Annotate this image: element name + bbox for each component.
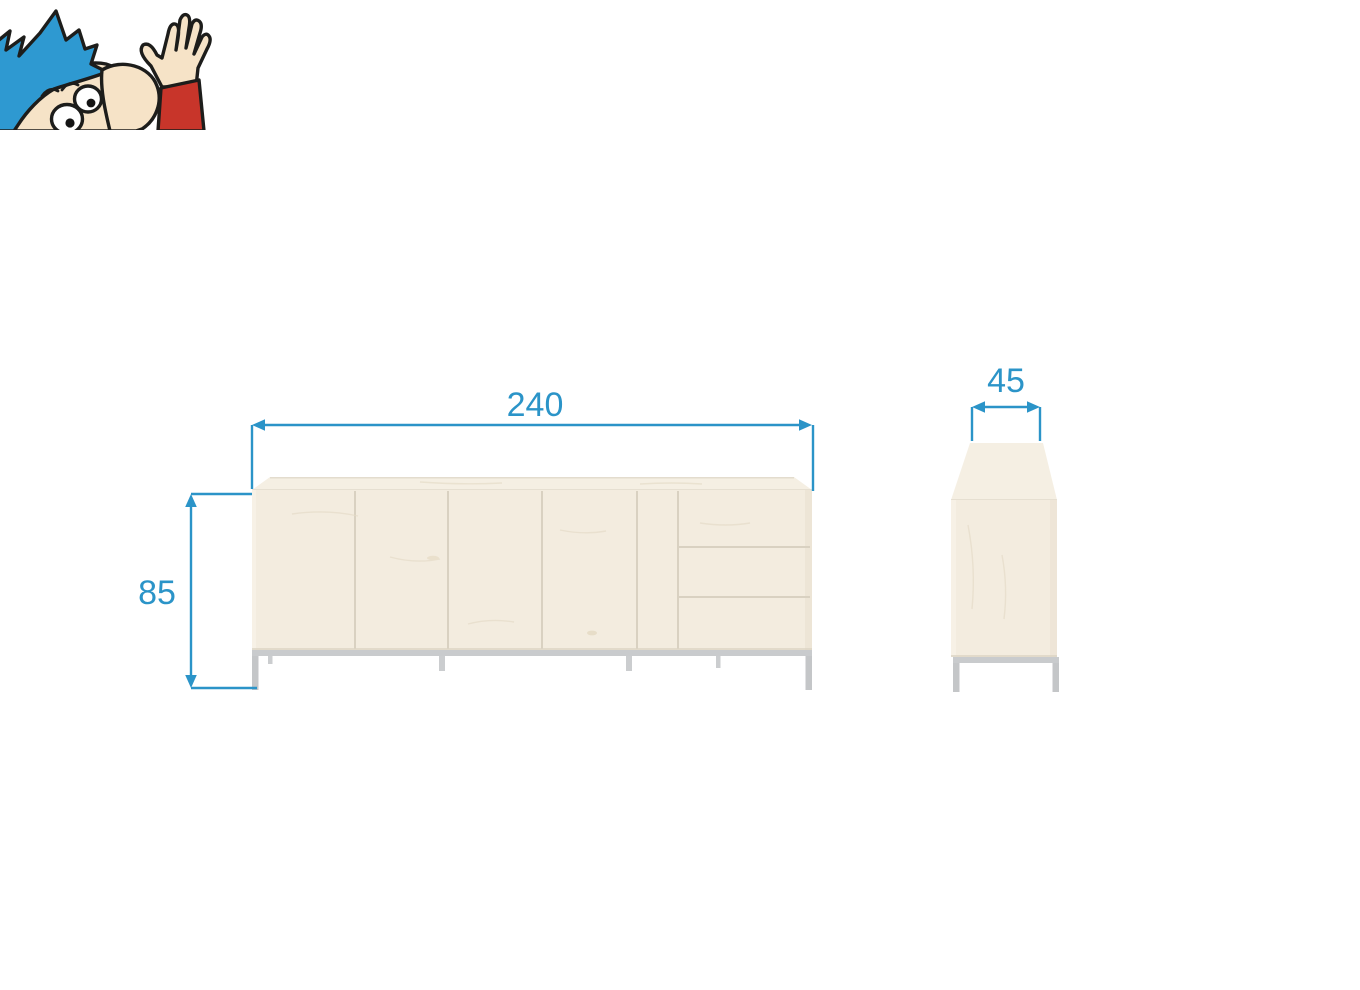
- front-leg-left: [252, 656, 259, 690]
- side-body: [951, 500, 1057, 657]
- dimension-diagram: 240 85 45: [0, 0, 1360, 990]
- back-leg-stub-left: [268, 656, 273, 664]
- wood-knot: [427, 556, 439, 560]
- width-dimension-label: 240: [507, 386, 564, 424]
- front-leg-middle-1: [439, 656, 445, 671]
- depth-dimension-label: 45: [987, 362, 1025, 400]
- width-arrow-right: [799, 419, 812, 431]
- mascot-nose: [102, 64, 160, 130]
- width-arrow-left: [252, 419, 265, 431]
- product-dimension-page: 240 85 45: [0, 0, 1360, 990]
- side-base-rail: [953, 657, 1059, 663]
- depth-arrow-right: [1027, 401, 1040, 413]
- depth-arrow-left: [972, 401, 985, 413]
- side-leg-back: [953, 663, 960, 692]
- front-body: [252, 490, 812, 650]
- depth-dimension: 45: [972, 362, 1040, 441]
- front-leg-middle-2: [626, 656, 632, 671]
- mascot-pupil-left: [65, 118, 74, 127]
- height-dimension: 85: [138, 494, 257, 688]
- front-leg-right: [806, 656, 813, 690]
- height-arrow-bottom: [185, 675, 197, 688]
- height-arrow-top: [185, 494, 197, 507]
- side-top-panel: [951, 443, 1057, 500]
- width-dimension: 240: [252, 386, 813, 491]
- front-right-edge-shade: [805, 490, 812, 650]
- side-view: [951, 443, 1059, 692]
- height-dimension-label: 85: [138, 574, 176, 612]
- side-right-shade: [1050, 500, 1057, 657]
- front-left-edge-highlight: [252, 490, 256, 650]
- side-leg-front: [1053, 663, 1060, 692]
- front-top-panel: [252, 477, 812, 490]
- side-left-highlight: [951, 500, 956, 657]
- front-view: [252, 477, 812, 690]
- mascot: [0, 0, 230, 130]
- mascot-sleeve: [158, 80, 204, 130]
- back-leg-stub-right: [716, 656, 721, 668]
- wood-knot: [587, 631, 597, 636]
- front-base-rail: [252, 650, 812, 656]
- mascot-pupil-right: [87, 99, 96, 108]
